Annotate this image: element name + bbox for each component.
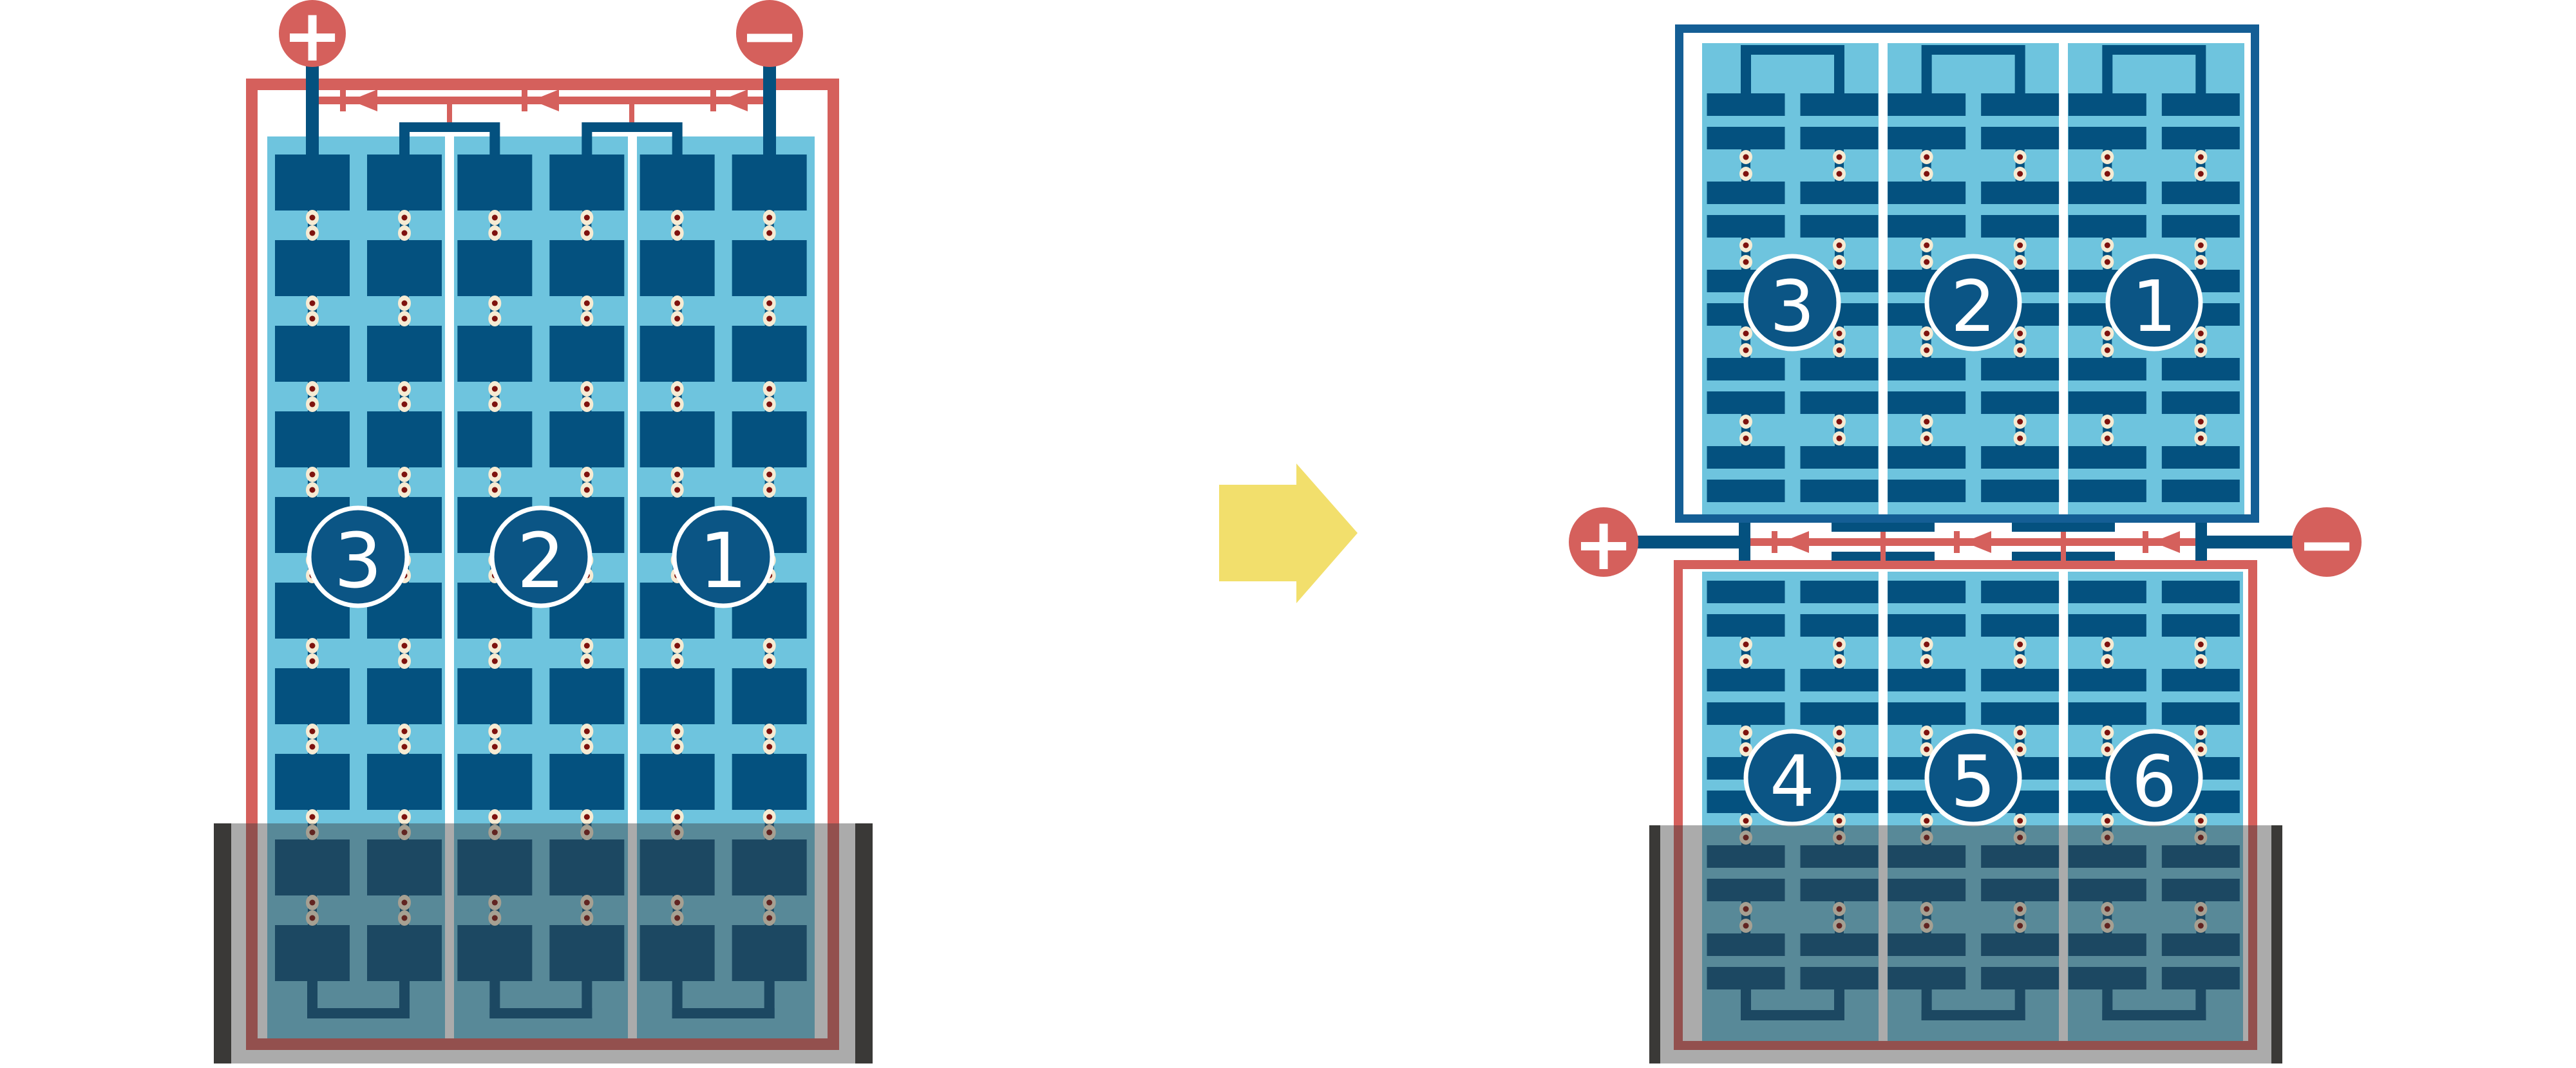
solar-cell bbox=[2069, 446, 2146, 469]
solder-dot-core bbox=[1743, 155, 1749, 160]
solder-dot-core bbox=[584, 487, 590, 493]
junction-tab bbox=[2012, 523, 2115, 532]
solder-dot-core bbox=[1924, 171, 1929, 177]
left-terminal-negative: − bbox=[736, 0, 803, 78]
solder-dot-core bbox=[2017, 348, 2023, 353]
solder-dot-core bbox=[1743, 436, 1749, 442]
solder-dot-core bbox=[492, 386, 498, 392]
solar-cell bbox=[275, 754, 350, 810]
solder-dot-core bbox=[492, 487, 498, 493]
solar-cell bbox=[732, 326, 807, 382]
string-bridge-leg bbox=[489, 132, 500, 155]
right-junction-wiring bbox=[1637, 523, 2293, 561]
right-bottom-string-labels: 4 5 6 bbox=[1746, 731, 2201, 824]
solder-dot-core bbox=[1743, 348, 1749, 353]
solar-cell bbox=[732, 155, 807, 211]
solder-dot-core bbox=[674, 643, 680, 649]
solar-cell bbox=[549, 754, 624, 810]
solder-dot-core bbox=[766, 487, 772, 493]
solar-cell bbox=[1707, 215, 1785, 238]
solar-cell bbox=[2069, 702, 2146, 725]
solar-cell bbox=[1707, 391, 1785, 414]
left-string-labels: 3 2 1 bbox=[309, 508, 772, 606]
right-terminal-positive: + bbox=[1569, 503, 1638, 586]
solder-dot-core bbox=[674, 472, 680, 478]
solder-dot-core bbox=[310, 386, 316, 392]
string-number: 5 bbox=[1951, 740, 1996, 823]
solar-cell bbox=[2162, 702, 2240, 725]
solder-dot-core bbox=[1924, 818, 1929, 824]
solder-dot-core bbox=[1924, 259, 1929, 265]
solar-cell bbox=[1981, 702, 2059, 725]
solar-cell bbox=[2162, 391, 2240, 414]
solder-dot-core bbox=[2105, 419, 2110, 425]
solder-dot-core bbox=[2198, 419, 2204, 425]
solder-dot-core bbox=[1837, 818, 1842, 824]
solder-dot-core bbox=[310, 643, 316, 649]
diode-arrow-icon bbox=[532, 89, 559, 111]
solder-dot-core bbox=[1924, 747, 1929, 753]
solder-dot-core bbox=[1924, 348, 1929, 353]
solar-cell bbox=[1888, 127, 1965, 149]
solder-dot-core bbox=[2105, 642, 2110, 648]
solder-dot-core bbox=[492, 215, 498, 221]
diode-arrow-icon bbox=[350, 89, 377, 111]
shade-end-bar bbox=[855, 823, 873, 1063]
diode-bar bbox=[1954, 531, 1960, 553]
solar-cell bbox=[2069, 215, 2146, 238]
solar-cell bbox=[367, 240, 442, 296]
solar-cell bbox=[367, 411, 442, 467]
left-terminal-positive: + bbox=[279, 0, 346, 78]
solder-dot-core bbox=[584, 472, 590, 478]
solar-cell bbox=[2069, 182, 2146, 204]
solder-dot-core bbox=[1837, 155, 1842, 160]
solder-dot-core bbox=[2105, 259, 2110, 265]
solder-dot-core bbox=[1743, 243, 1749, 248]
solder-dot-core bbox=[584, 316, 590, 322]
solder-dot-core bbox=[766, 729, 772, 735]
solar-cell bbox=[2162, 182, 2240, 204]
solar-cell bbox=[2069, 581, 2146, 603]
solar-cell bbox=[1981, 127, 2059, 149]
solar-cell bbox=[1801, 446, 1879, 469]
solar-cell bbox=[1801, 127, 1879, 149]
solar-cell bbox=[640, 668, 715, 724]
solder-dot-core bbox=[2105, 730, 2110, 736]
solar-cell bbox=[1981, 669, 2059, 691]
solder-dot-core bbox=[1924, 642, 1929, 648]
solder-dot-core bbox=[2198, 243, 2204, 248]
solar-cell bbox=[1801, 702, 1879, 725]
string-number: 1 bbox=[2132, 265, 2177, 348]
solar-cell bbox=[640, 326, 715, 382]
solar-cell bbox=[1801, 669, 1879, 691]
u-connector-bar bbox=[2102, 45, 2206, 55]
solar-cell bbox=[732, 754, 807, 810]
string-number: 4 bbox=[1770, 740, 1815, 823]
solder-dot-core bbox=[2017, 730, 2023, 736]
solder-dot-core bbox=[2017, 419, 2023, 425]
solar-cell bbox=[1888, 702, 1965, 725]
solar-cell bbox=[2162, 446, 2240, 469]
solder-dot-core bbox=[584, 230, 590, 236]
left-module: + − 3 2 1 bbox=[214, 0, 873, 1063]
solar-cell bbox=[1707, 446, 1785, 469]
rail-stub bbox=[447, 104, 452, 124]
solder-dot-core bbox=[674, 301, 680, 306]
solder-dot-core bbox=[1837, 331, 1842, 337]
string-number: 6 bbox=[2132, 740, 2177, 823]
solder-dot-core bbox=[402, 402, 408, 408]
solder-dot-core bbox=[492, 230, 498, 236]
solder-dot-core bbox=[674, 487, 680, 493]
solar-cell bbox=[2162, 358, 2240, 380]
solder-dot-core bbox=[2105, 171, 2110, 177]
solar-cell bbox=[1888, 93, 1965, 116]
solder-dot-core bbox=[584, 659, 590, 664]
shade-end-bar bbox=[1649, 825, 1660, 1063]
solar-cell bbox=[1801, 93, 1879, 116]
solar-cell bbox=[2069, 358, 2146, 380]
solar-cell bbox=[2069, 391, 2146, 414]
solar-cell bbox=[457, 240, 532, 296]
diode-bar bbox=[340, 89, 346, 111]
solder-dot-core bbox=[674, 744, 680, 750]
solder-dot-core bbox=[766, 472, 772, 478]
rail-stub bbox=[1880, 532, 1886, 561]
solder-dot-core bbox=[2017, 642, 2023, 648]
string-bridge-bar bbox=[399, 122, 500, 132]
solder-dot-core bbox=[310, 487, 316, 493]
solder-dot-core bbox=[492, 729, 498, 735]
solder-dot-core bbox=[766, 402, 772, 408]
string-number: 3 bbox=[1770, 265, 1815, 348]
string-number: 3 bbox=[334, 516, 382, 605]
solar-cell bbox=[275, 240, 350, 296]
plus-sign: + bbox=[282, 0, 343, 78]
minus-sign: − bbox=[2297, 503, 2357, 586]
solder-dot-core bbox=[2198, 436, 2204, 442]
rail-stub bbox=[2061, 532, 2066, 561]
solder-dot-core bbox=[766, 316, 772, 322]
diode-bar bbox=[710, 89, 716, 111]
right-shade-overlay bbox=[1649, 825, 2282, 1063]
u-connector-leg bbox=[1741, 55, 1751, 95]
solar-cell bbox=[1981, 215, 2059, 238]
solder-dot-core bbox=[1743, 818, 1749, 824]
solder-dot-core bbox=[310, 316, 316, 322]
solar-cell bbox=[275, 155, 350, 211]
solder-dot-core bbox=[2198, 642, 2204, 648]
solar-cell bbox=[457, 326, 532, 382]
solder-dot-core bbox=[584, 301, 590, 306]
solder-dot-core bbox=[584, 643, 590, 649]
solar-cell bbox=[1707, 669, 1785, 691]
solar-cell bbox=[367, 754, 442, 810]
solar-cell bbox=[1707, 614, 1785, 637]
u-connector-leg bbox=[2102, 55, 2112, 95]
shade-end-bar bbox=[214, 823, 231, 1063]
solder-dot-core bbox=[1924, 243, 1929, 248]
solder-dot-core bbox=[766, 659, 772, 664]
solder-dot-core bbox=[2105, 659, 2110, 664]
solder-dot-core bbox=[1924, 419, 1929, 425]
solar-cell bbox=[2162, 669, 2240, 691]
solar-cell bbox=[1707, 480, 1785, 502]
solder-dot-core bbox=[2017, 259, 2023, 265]
solar-cell bbox=[367, 326, 442, 382]
solder-dot-core bbox=[674, 402, 680, 408]
shade-overlay bbox=[1649, 825, 2282, 1063]
solder-dot-core bbox=[402, 487, 408, 493]
solar-cell bbox=[1981, 446, 2059, 469]
solder-dot-core bbox=[2017, 243, 2023, 248]
solar-cell bbox=[1707, 182, 1785, 204]
solder-dot-core bbox=[402, 230, 408, 236]
solar-cell bbox=[2162, 614, 2240, 637]
solder-dot-core bbox=[402, 301, 408, 306]
string-number: 1 bbox=[699, 516, 747, 605]
solder-dot-core bbox=[310, 230, 316, 236]
solar-cell bbox=[367, 668, 442, 724]
shade-end-bar bbox=[2271, 825, 2282, 1063]
solar-cell bbox=[1801, 215, 1879, 238]
solar-cell bbox=[1981, 182, 2059, 204]
solar-cell bbox=[732, 240, 807, 296]
string-number: 2 bbox=[1951, 265, 1996, 348]
solder-dot-core bbox=[492, 643, 498, 649]
transform-arrow bbox=[1219, 464, 1358, 603]
solar-cell bbox=[2162, 215, 2240, 238]
solder-dot-core bbox=[1924, 331, 1929, 337]
solar-cell bbox=[2069, 614, 2146, 637]
solar-cell bbox=[275, 326, 350, 382]
minus-sign: − bbox=[739, 0, 800, 78]
solder-dot-core bbox=[492, 316, 498, 322]
solar-cell bbox=[1888, 581, 1965, 603]
solar-cell bbox=[1801, 358, 1879, 380]
solar-cell bbox=[1981, 480, 2059, 502]
solder-dot-core bbox=[674, 386, 680, 392]
string-bridge-leg bbox=[672, 132, 683, 155]
solder-dot-core bbox=[310, 301, 316, 306]
solar-cell bbox=[1707, 127, 1785, 149]
solar-cell bbox=[1888, 182, 1965, 204]
solar-cell bbox=[2069, 669, 2146, 691]
u-connector-leg bbox=[1834, 55, 1844, 95]
solar-cell bbox=[1981, 391, 2059, 414]
solder-dot-core bbox=[2198, 171, 2204, 177]
left-shade-overlay bbox=[214, 823, 873, 1063]
solder-dot-core bbox=[402, 215, 408, 221]
solder-dot-core bbox=[2105, 155, 2110, 160]
solder-dot-core bbox=[1837, 747, 1842, 753]
string-bridge-leg bbox=[582, 132, 592, 155]
solder-dot-core bbox=[766, 643, 772, 649]
solder-dot-core bbox=[766, 301, 772, 306]
solder-dot-core bbox=[492, 814, 498, 820]
solder-dot-core bbox=[1743, 259, 1749, 265]
solder-dot-core bbox=[766, 744, 772, 750]
solder-dot-core bbox=[1743, 419, 1749, 425]
solder-dot-core bbox=[310, 402, 316, 408]
solder-dot-core bbox=[1924, 730, 1929, 736]
terminal-stem bbox=[2207, 536, 2293, 548]
right-terminal-negative: − bbox=[2292, 503, 2362, 586]
solder-dot-core bbox=[1743, 331, 1749, 337]
solder-dot-core bbox=[2105, 436, 2110, 442]
solder-dot-core bbox=[2105, 818, 2110, 824]
solar-cell bbox=[1981, 358, 2059, 380]
solar-cell bbox=[457, 411, 532, 467]
solar-cell bbox=[2069, 127, 2146, 149]
solar-cell bbox=[1707, 358, 1785, 380]
solder-dot-core bbox=[1924, 436, 1929, 442]
solder-dot-core bbox=[402, 643, 408, 649]
solar-cell bbox=[1888, 614, 1965, 637]
solder-dot-core bbox=[1743, 730, 1749, 736]
solar-cell bbox=[457, 668, 532, 724]
diode-bar bbox=[1772, 531, 1777, 553]
solder-dot-core bbox=[1743, 642, 1749, 648]
solder-dot-core bbox=[2017, 436, 2023, 442]
solder-dot-core bbox=[1837, 659, 1842, 664]
solar-cell bbox=[1801, 614, 1879, 637]
u-connector-leg bbox=[2195, 55, 2206, 95]
solder-dot-core bbox=[310, 729, 316, 735]
solder-dot-core bbox=[2198, 818, 2204, 824]
solder-dot-core bbox=[2198, 659, 2204, 664]
solar-cell bbox=[1981, 581, 2059, 603]
solder-dot-core bbox=[2105, 243, 2110, 248]
solar-cell bbox=[457, 155, 532, 211]
solder-dot-core bbox=[2198, 730, 2204, 736]
solar-cell bbox=[1801, 391, 1879, 414]
solder-dot-core bbox=[674, 814, 680, 820]
solar-cell bbox=[1888, 215, 1965, 238]
u-connector-bar bbox=[1922, 45, 2025, 55]
solar-cell bbox=[549, 240, 624, 296]
solar-cell bbox=[1981, 93, 2059, 116]
solder-dot-core bbox=[2105, 348, 2110, 353]
solder-dot-core bbox=[1837, 730, 1842, 736]
string-divider bbox=[2059, 43, 2068, 514]
solder-dot-core bbox=[492, 744, 498, 750]
solar-cell bbox=[2069, 480, 2146, 502]
solder-dot-core bbox=[402, 386, 408, 392]
solder-dot-core bbox=[1837, 259, 1842, 265]
solder-dot-core bbox=[1837, 243, 1842, 248]
junction-tab bbox=[1832, 523, 1935, 532]
solar-cell bbox=[2162, 480, 2240, 502]
solder-dot-core bbox=[674, 659, 680, 664]
solder-dot-core bbox=[492, 659, 498, 664]
solder-dot-core bbox=[310, 659, 316, 664]
rail-stub bbox=[629, 104, 634, 124]
solder-dot-core bbox=[310, 814, 316, 820]
solder-dot-core bbox=[584, 215, 590, 221]
solar-cell bbox=[1888, 480, 1965, 502]
solar-cell bbox=[549, 411, 624, 467]
solder-dot-core bbox=[584, 402, 590, 408]
solar-cell bbox=[732, 411, 807, 467]
solder-dot-core bbox=[310, 744, 316, 750]
solder-dot-core bbox=[1924, 659, 1929, 664]
solar-cell bbox=[457, 754, 532, 810]
u-connector-bar bbox=[1741, 45, 1844, 55]
solar-cell bbox=[640, 240, 715, 296]
solder-dot-core bbox=[2198, 348, 2204, 353]
solder-dot-core bbox=[1837, 436, 1842, 442]
solder-dot-core bbox=[402, 814, 408, 820]
diode-arrow-icon bbox=[1782, 531, 1809, 553]
solder-dot-core bbox=[310, 472, 316, 478]
terminal-stem bbox=[1637, 536, 1739, 548]
diode-bar bbox=[2143, 531, 2148, 553]
junction-riser bbox=[2195, 523, 2207, 561]
solar-cell bbox=[1888, 358, 1965, 380]
solder-dot-core bbox=[1837, 642, 1842, 648]
solder-dot-core bbox=[492, 301, 498, 306]
solar-cell bbox=[367, 155, 442, 211]
solar-cell bbox=[549, 326, 624, 382]
solar-cell bbox=[1707, 702, 1785, 725]
solar-cell bbox=[640, 155, 715, 211]
solar-cell bbox=[2162, 93, 2240, 116]
solder-dot-core bbox=[1924, 155, 1929, 160]
diagram-stage: + − 3 2 1 + − bbox=[0, 0, 2576, 1068]
string-bridge-bar bbox=[582, 122, 682, 132]
solder-dot-core bbox=[1837, 348, 1842, 353]
solar-cell bbox=[549, 155, 624, 211]
solar-cell bbox=[732, 668, 807, 724]
solar-cell bbox=[2162, 581, 2240, 603]
solder-dot-core bbox=[492, 402, 498, 408]
solder-dot-core bbox=[584, 744, 590, 750]
solder-dot-core bbox=[2198, 747, 2204, 753]
solder-dot-core bbox=[402, 316, 408, 322]
shade-overlay bbox=[214, 823, 873, 1063]
solar-cell bbox=[275, 668, 350, 724]
solar-cell bbox=[275, 411, 350, 467]
solder-dot-core bbox=[402, 659, 408, 664]
solder-dot-core bbox=[674, 729, 680, 735]
solder-dot-core bbox=[2017, 747, 2023, 753]
solder-dot-core bbox=[402, 729, 408, 735]
solar-module-shading-diagram: + − 3 2 1 + − bbox=[0, 0, 2576, 1068]
solder-dot-core bbox=[1743, 171, 1749, 177]
u-connector-leg bbox=[2015, 55, 2025, 95]
solar-cell bbox=[1981, 614, 2059, 637]
solder-dot-core bbox=[310, 215, 316, 221]
solar-cell bbox=[1888, 391, 1965, 414]
solder-dot-core bbox=[674, 316, 680, 322]
solder-dot-core bbox=[1743, 747, 1749, 753]
solar-cell bbox=[2069, 93, 2146, 116]
solder-dot-core bbox=[2105, 331, 2110, 337]
solar-cell bbox=[1801, 480, 1879, 502]
right-arrow-icon bbox=[1219, 464, 1358, 603]
solder-dot-core bbox=[766, 814, 772, 820]
solar-cell bbox=[2162, 127, 2240, 149]
solar-cell bbox=[640, 754, 715, 810]
plus-sign: + bbox=[1573, 503, 1634, 586]
solder-dot-core bbox=[766, 230, 772, 236]
solar-cell bbox=[1707, 581, 1785, 603]
solder-dot-core bbox=[2198, 259, 2204, 265]
solder-dot-core bbox=[2198, 331, 2204, 337]
